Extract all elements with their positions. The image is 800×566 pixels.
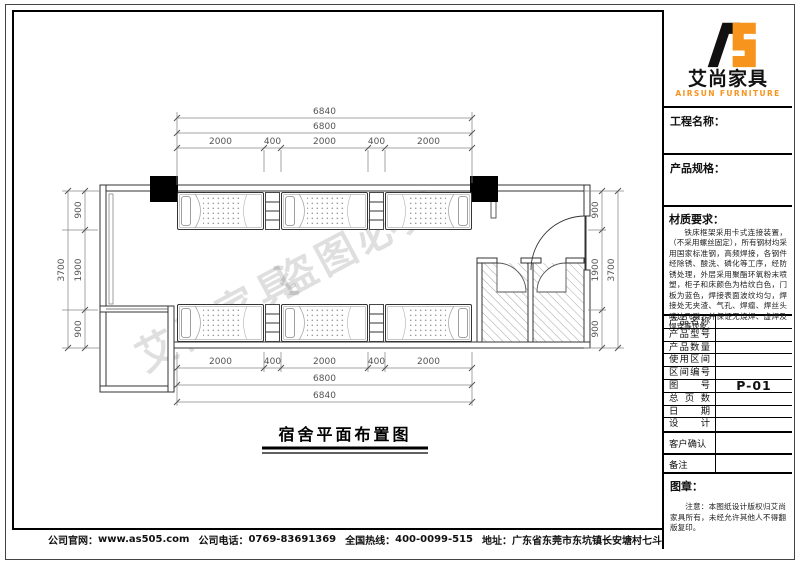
title-block: 艾尚家具 AIRSUN FURNITURE 工程名称： 产品规格： 材质要求： … <box>662 10 792 549</box>
copyright-note: 注意：本图纸设计版权归艾尚家具所有，未经允许其他人不得翻版复印。 <box>670 502 786 534</box>
table-row: 产品名称 <box>664 316 792 329</box>
website-label: 公司官网： <box>48 532 98 547</box>
drawing-number: P-01 <box>716 378 792 393</box>
address-label: 地址： <box>482 532 512 547</box>
address-value: 广东省东莞市东坑镇长安塘村七斗种1号H座-D <box>512 532 662 547</box>
drawing-sheet: { "brand": { "name_cn": "艾尚家具", "name_en… <box>0 0 800 566</box>
phone-value: 0769-83691369 <box>248 534 336 545</box>
seal-section: 图章： 注意：本图纸设计版权归艾尚家具所有，未经允许其他人不得翻版复印。 <box>664 474 792 549</box>
customer-confirm-row: 客户确认 <box>664 433 792 455</box>
table-row-drawing-number: 图号 P-01 <box>664 380 792 393</box>
brand-monogram-icon <box>697 19 759 69</box>
brand-name-en: AIRSUN FURNITURE <box>675 90 780 98</box>
material-requirements-label: 材质要求： <box>669 211 787 227</box>
row-label: 备注 <box>664 455 716 472</box>
row-label: 区间编号 <box>664 367 716 379</box>
brand-name-cn: 艾尚家具 <box>688 70 768 89</box>
table-row: 产品数量 <box>664 342 792 355</box>
row-label: 设计 <box>664 418 716 431</box>
remarks-row: 备注 <box>664 455 792 474</box>
material-requirements: 材质要求： 铁床框架采用卡式连接装置，（不采用螺丝固定），所有钢材均采用国家标准… <box>664 207 792 316</box>
hotline-value: 400-0099-515 <box>395 534 473 545</box>
product-spec-field: 产品规格： <box>664 155 792 207</box>
table-row: 使用区间 <box>664 354 792 367</box>
table-row: 总页数 <box>664 393 792 406</box>
row-label: 使用区间 <box>664 354 716 366</box>
project-name-field: 工程名称： <box>664 108 792 155</box>
table-row: 产品型号 <box>664 329 792 342</box>
row-label: 图号 <box>664 380 716 392</box>
website-value: www.as505.com <box>98 534 189 545</box>
hotline-label: 全国热线： <box>345 532 395 547</box>
row-label: 总页数 <box>664 393 716 405</box>
phone-label: 公司电话： <box>198 532 248 547</box>
row-label: 日期 <box>664 406 716 418</box>
brand-logo: 艾尚家具 AIRSUN FURNITURE <box>664 10 792 108</box>
table-row: 日期 <box>664 406 792 419</box>
row-label: 产品数量 <box>664 342 716 354</box>
footer-bar: 公司官网：www.as505.com 公司电话：0769-83691369 全国… <box>12 528 662 549</box>
row-label: 客户确认 <box>664 433 716 453</box>
row-label: 产品型号 <box>664 329 716 341</box>
info-table: 产品名称 产品型号 产品数量 使用区间 区间编号 图号 P-01 总页数 日期 <box>664 316 792 433</box>
row-label: 产品名称 <box>664 316 716 328</box>
seal-label: 图章： <box>670 478 786 494</box>
table-row: 设计 <box>664 418 792 431</box>
